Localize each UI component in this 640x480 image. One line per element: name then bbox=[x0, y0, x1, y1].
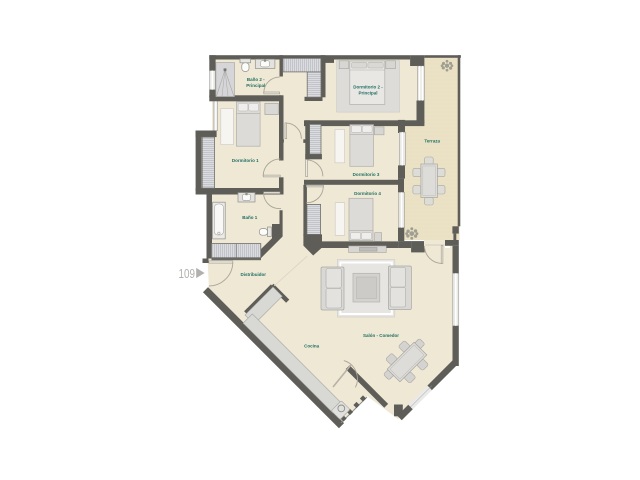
svg-text:Baño 2 -Principal: Baño 2 -Principal bbox=[246, 77, 265, 88]
svg-text:Dormitorio 1: Dormitorio 1 bbox=[232, 158, 259, 163]
svg-text:Terraza: Terraza bbox=[424, 139, 440, 144]
svg-text:109: 109 bbox=[179, 266, 196, 281]
svg-text:Distribuidor: Distribuidor bbox=[241, 272, 267, 277]
svg-text:Baño 1: Baño 1 bbox=[242, 215, 258, 220]
svg-text:Dormitorio 3: Dormitorio 3 bbox=[353, 172, 380, 177]
svg-text:Dormitorio 4: Dormitorio 4 bbox=[354, 191, 381, 196]
svg-text:Salón - Comedor: Salón - Comedor bbox=[363, 333, 399, 338]
svg-text:Cocina: Cocina bbox=[304, 343, 320, 348]
